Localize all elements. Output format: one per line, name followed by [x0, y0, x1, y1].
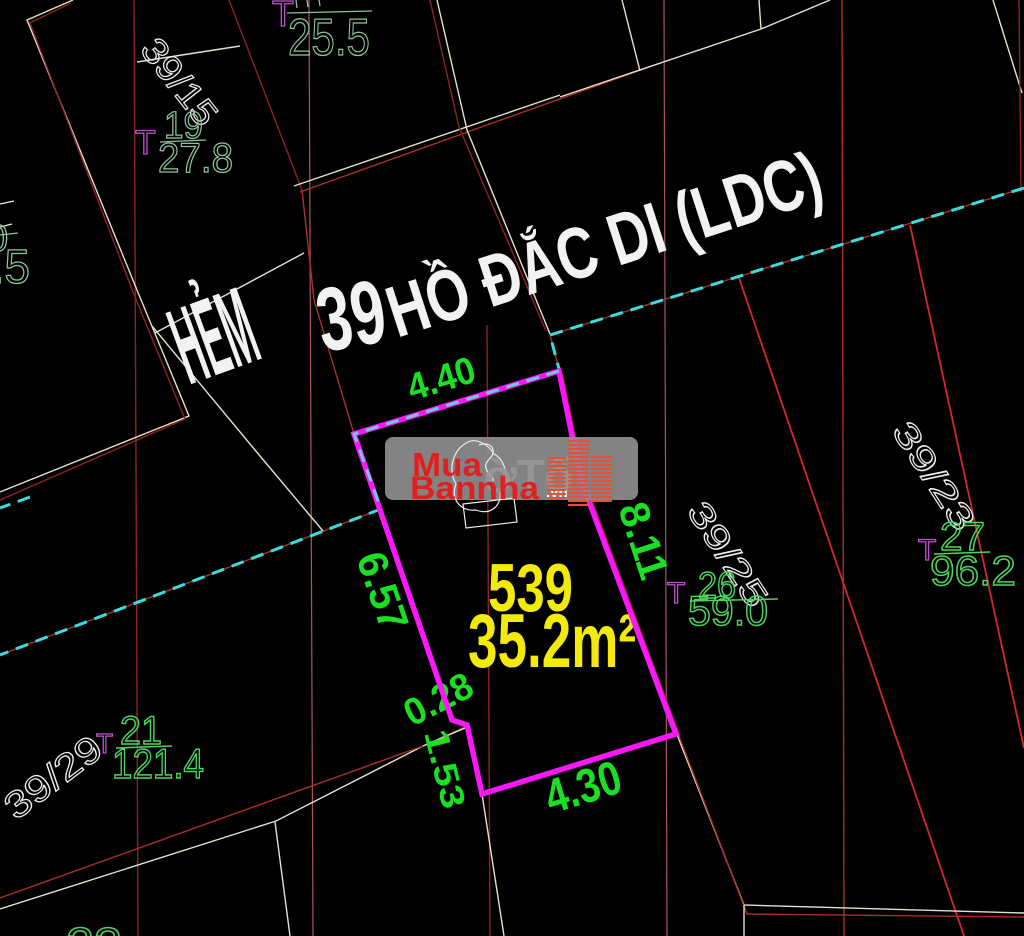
svg-text:25.5: 25.5 [288, 9, 370, 67]
svg-text:T: T [96, 728, 113, 759]
svg-text:9.5: 9.5 [0, 241, 30, 294]
svg-text:59.0: 59.0 [688, 587, 768, 634]
svg-text:96.2: 96.2 [930, 547, 1016, 594]
svg-text:121.4: 121.4 [112, 740, 204, 787]
svg-text:23: 23 [66, 918, 122, 936]
svg-text:27.8: 27.8 [158, 134, 233, 181]
svg-text:35.2m²: 35.2m² [468, 599, 636, 684]
svg-text:T: T [135, 124, 156, 162]
svg-text:Bannha: Bannha [410, 470, 539, 506]
svg-text:T: T [667, 577, 685, 610]
